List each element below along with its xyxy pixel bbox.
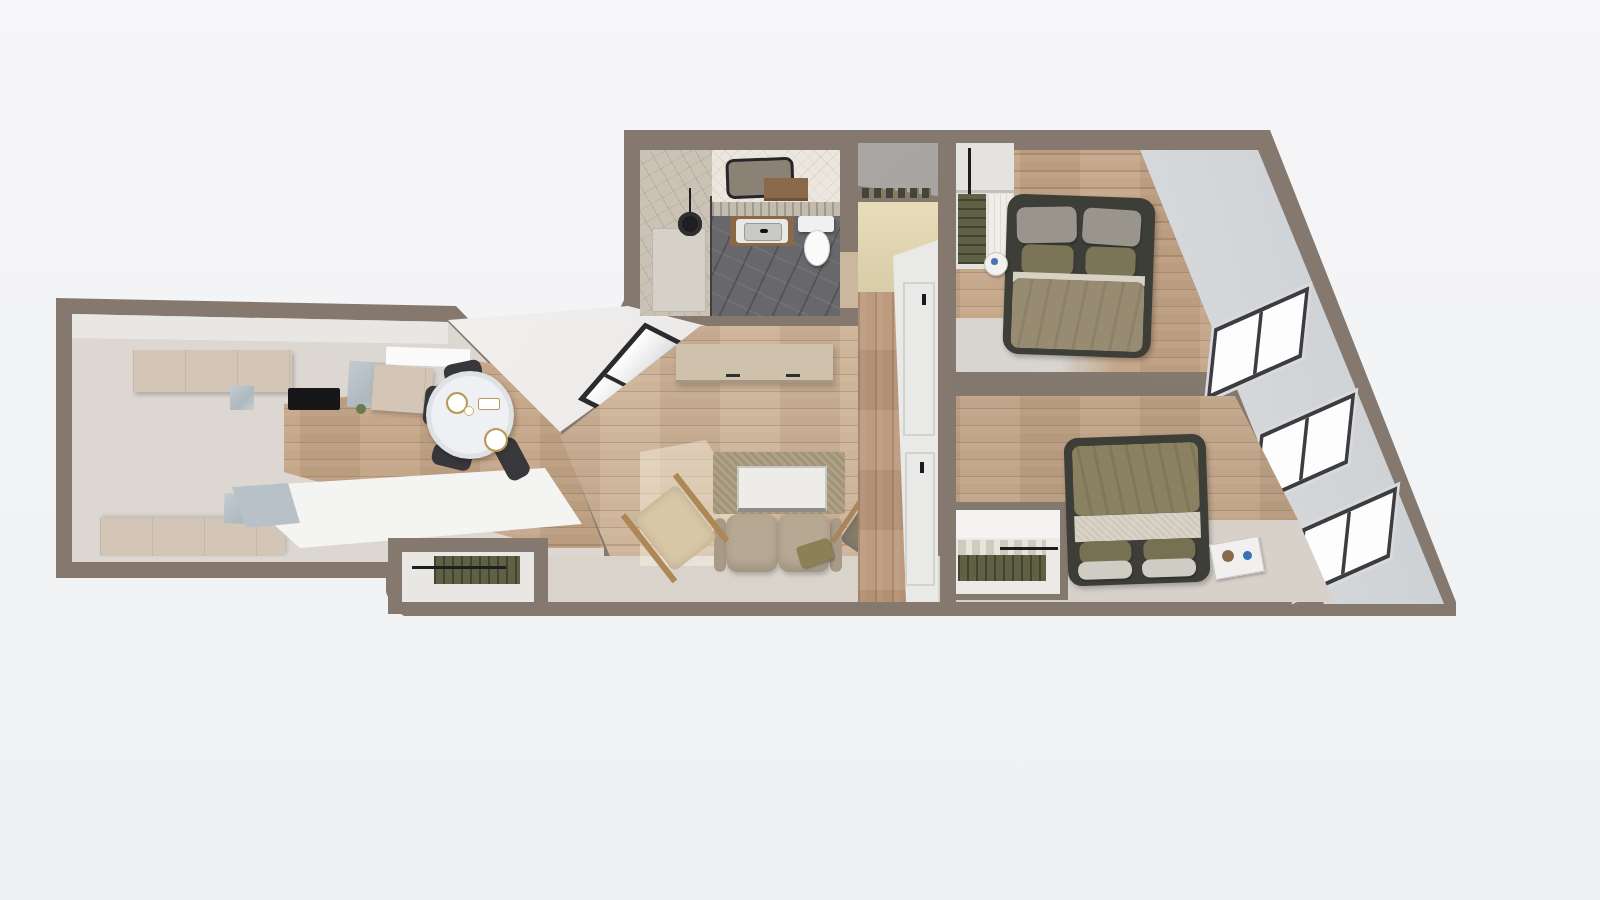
nightstand2-blue-cup <box>1242 550 1253 561</box>
cup <box>464 406 474 416</box>
wardrobe2-hanging-clothes <box>958 555 1046 581</box>
wardrobe2-rail <box>1000 547 1058 550</box>
sofa <box>714 512 842 574</box>
sideboard-handle-1 <box>726 374 740 377</box>
closet1-pole <box>968 148 971 194</box>
window-2-mullion <box>1299 417 1309 481</box>
bed2-pillow-light-2 <box>1142 558 1197 578</box>
toilet-bowl <box>804 230 830 266</box>
bed2 <box>1063 434 1210 587</box>
kitchen-upper-cabinets <box>133 350 292 392</box>
closet1-clothes-stack <box>958 194 986 264</box>
nightstand2-knob <box>1222 550 1234 562</box>
window-3-mullion <box>1341 511 1351 575</box>
sideboard-handle-2 <box>786 374 800 377</box>
bed1-duvet <box>1010 278 1144 353</box>
hall-closet-rail <box>412 566 506 569</box>
bathroom-slat-band <box>712 202 840 216</box>
nightstand1-item <box>991 258 998 265</box>
bed2-pillow-light-1 <box>1078 560 1133 580</box>
serving-tray <box>478 398 500 410</box>
plant-icon <box>356 404 366 414</box>
hall-closet-clothes <box>434 556 520 584</box>
shower-floor <box>652 228 706 312</box>
bed1 <box>1002 193 1155 358</box>
sink-faucet-icon <box>760 229 768 233</box>
dinner-plate-2 <box>484 428 508 452</box>
bed1-pillow-olive-2 <box>1085 246 1136 278</box>
sideboard <box>676 344 833 383</box>
bed2-duvet <box>1072 442 1200 516</box>
bed1-pillow-gray-1 <box>1016 206 1077 243</box>
bed1-pillow-gray-2 <box>1082 207 1142 247</box>
door-handle-1 <box>922 294 926 305</box>
closet1-shelf-line <box>956 190 1014 193</box>
entry-shoe-shelf <box>862 188 934 198</box>
bathroom-door-gap <box>840 252 858 308</box>
wardrobe2-top-shelf <box>956 510 1060 538</box>
floorplan-stage <box>0 0 1600 900</box>
cooktop <box>288 388 340 410</box>
bathroom-wood-shelf <box>764 178 808 201</box>
door-panel-1 <box>903 282 935 436</box>
window-1-mullion <box>1253 311 1263 375</box>
sofa-seat-1 <box>726 514 778 572</box>
door-handle-2 <box>920 462 924 473</box>
coffee-table <box>737 466 827 512</box>
ceiling-lamp-icon <box>678 212 702 236</box>
marble-block-small <box>230 386 254 410</box>
bed1-pillow-olive-1 <box>1021 244 1074 276</box>
